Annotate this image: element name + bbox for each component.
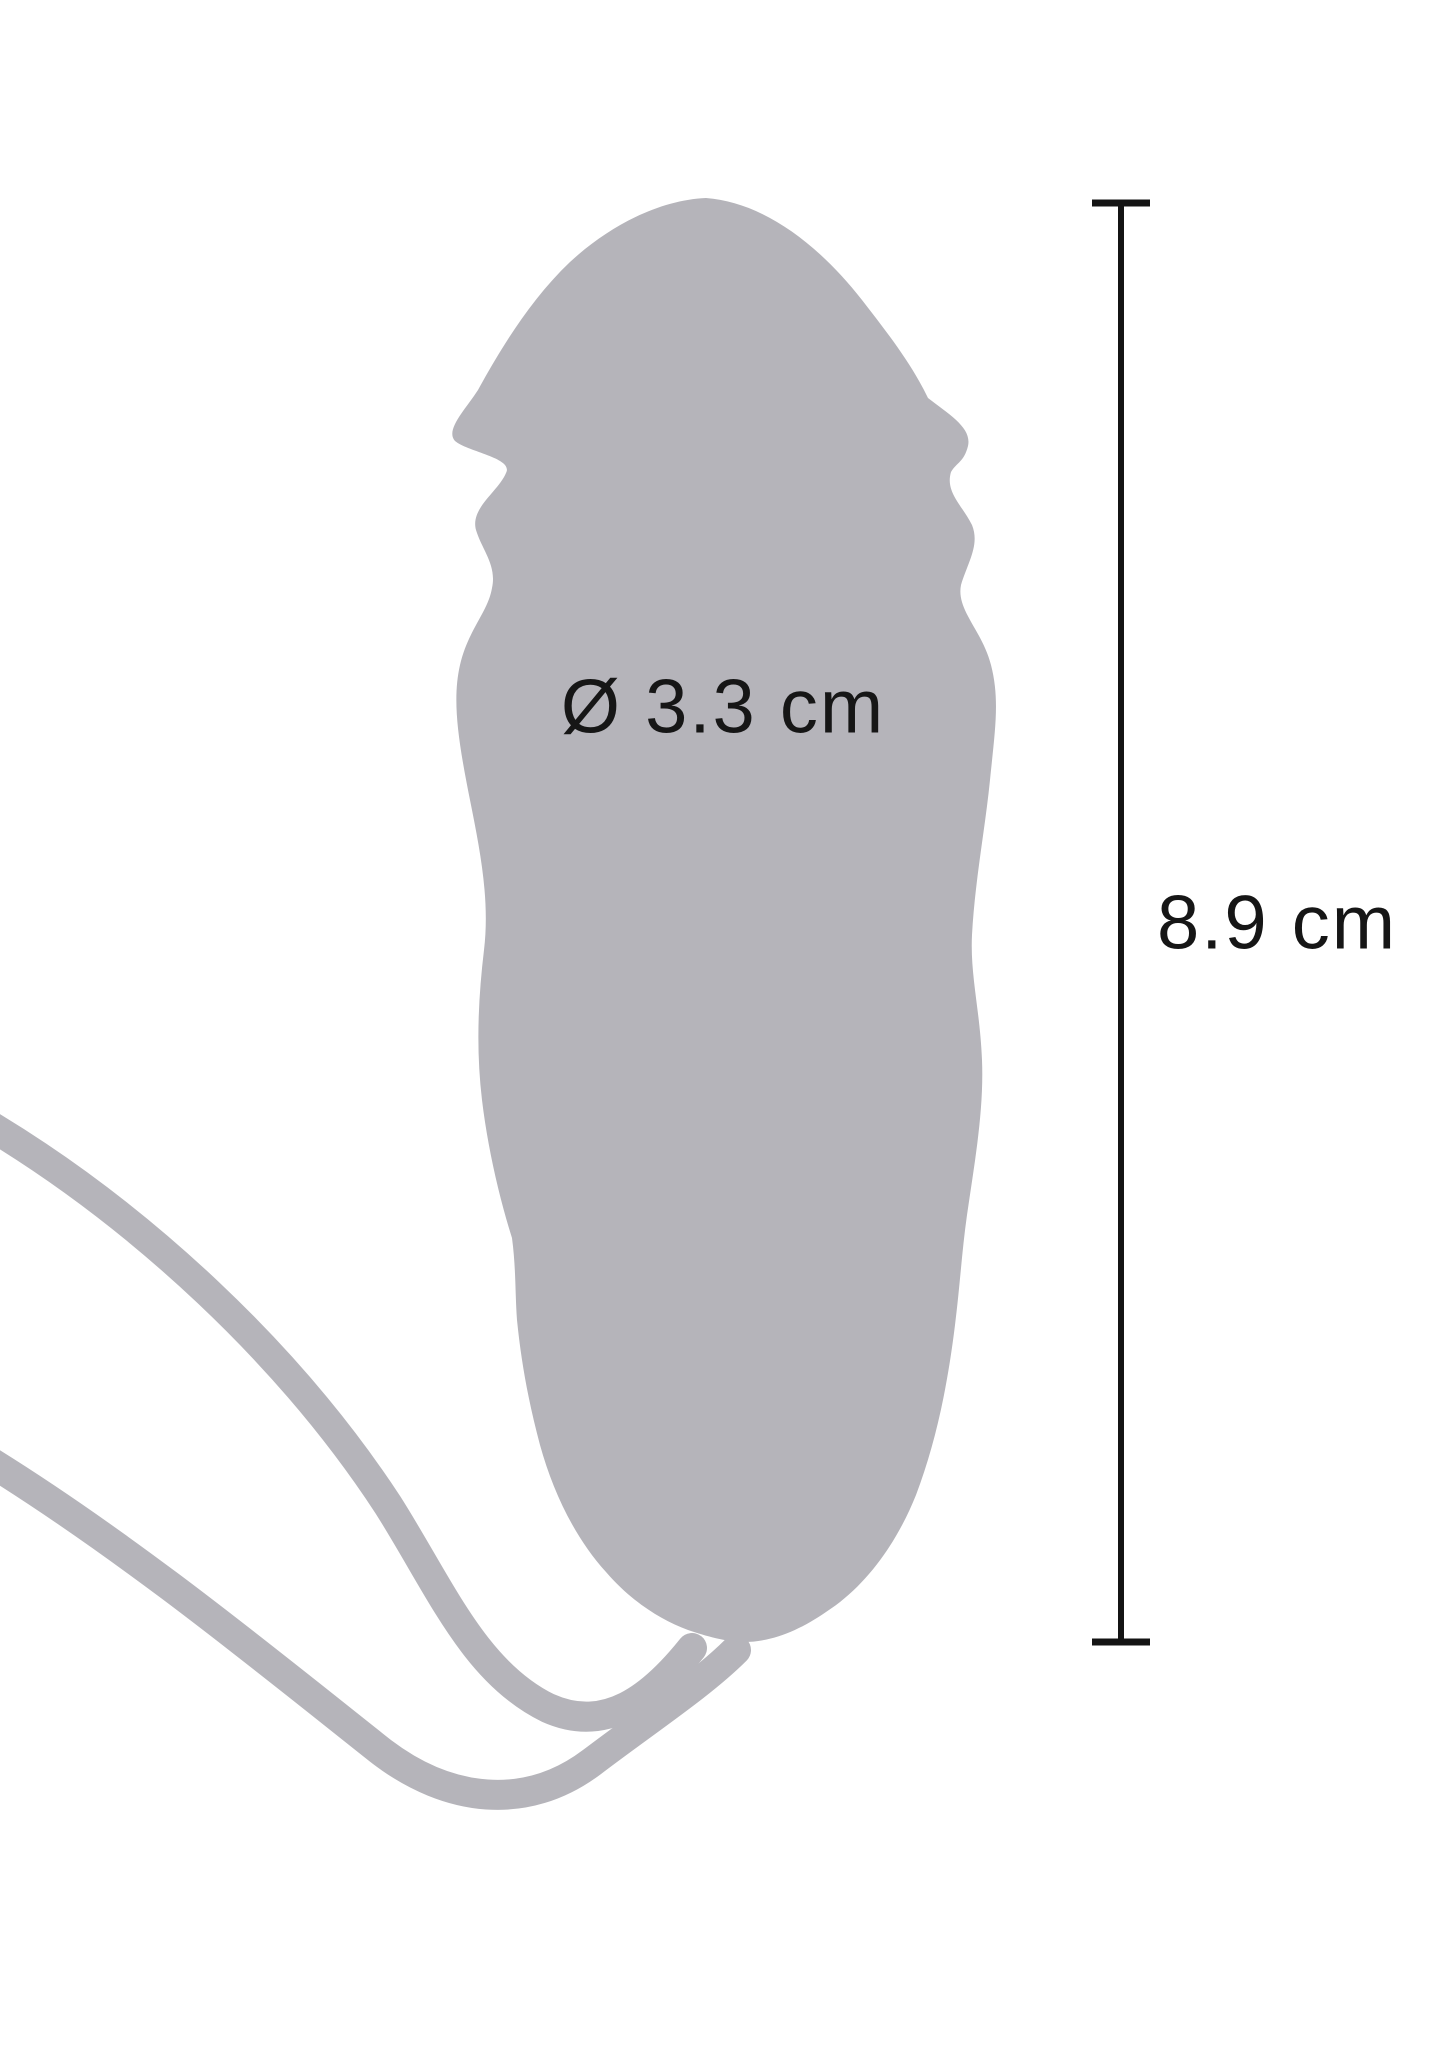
silhouette-graphic: [0, 0, 1445, 2047]
measurement-line: [1092, 203, 1150, 1642]
egg-body: [452, 198, 996, 1642]
product-dimension-diagram: Ø 3.3 cm 8.9 cm: [0, 0, 1445, 2047]
diameter-label: Ø 3.3 cm: [561, 664, 885, 751]
length-label: 8.9 cm: [1157, 880, 1397, 967]
